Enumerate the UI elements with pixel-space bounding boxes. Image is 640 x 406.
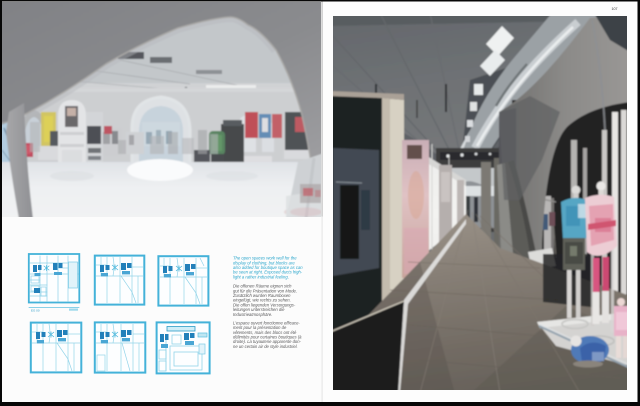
svg-text:107: 107 [612, 7, 618, 11]
svg-text:ne un certain air de style ind: ne un certain air de style industriel. [233, 344, 298, 349]
svg-text:EG 00: EG 00 [31, 309, 40, 313]
svg-text:Industrieatmosphäre.: Industrieatmosphäre. [233, 312, 272, 317]
svg-text:light a rather industrial feel: light a rather industrial feeling. [233, 274, 289, 279]
